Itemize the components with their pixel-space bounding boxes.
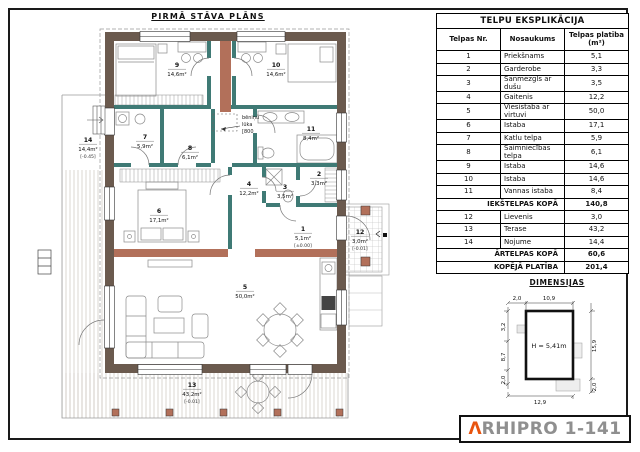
room-nr: 7 [437, 132, 501, 145]
room-name: Istaba [501, 120, 565, 133]
column-header-name: Nosaukums [501, 29, 565, 51]
table-row: 6Istaba17,1 [437, 120, 629, 133]
room-area-label: 3,3m² [311, 180, 327, 187]
room-number: 3 [283, 184, 287, 191]
room-nr: 5 [437, 104, 501, 120]
table-row: 2Garderobe3,3 [437, 63, 629, 76]
table-row: 9Istaba14,6 [437, 161, 629, 174]
logo-accent-letter: Λ [468, 421, 481, 438]
entry-steps [87, 106, 105, 134]
room-number: 12 [356, 229, 365, 236]
dim-left-3: 2,0 [501, 375, 507, 384]
room-area: 3,0 [565, 211, 629, 224]
room-elevation-label: [-0.45] [80, 154, 96, 160]
room-nr: 3 [437, 76, 501, 92]
room-area-label: 8,4m² [303, 135, 319, 142]
room-area: 5,1 [565, 51, 629, 64]
summary-area: 140,8 [565, 198, 629, 211]
column-header-nr: Telpas Nr. [437, 29, 501, 51]
room-area: 3,3 [565, 63, 629, 76]
table-title: TELPU EKSPLIKĀCIJA [437, 14, 629, 29]
room-name: Vannas istaba [501, 186, 565, 199]
room-name: Gaitenis [501, 91, 565, 104]
room-name: Viesistaba ar virtuvi [501, 104, 565, 120]
table-row: 1Priekšnams5,1 [437, 51, 629, 64]
table-row: 4Gaitenis12,2 [437, 91, 629, 104]
column-header-area: Telpas platība (m²) [565, 29, 629, 51]
logo: ΛRHIPRO 1-141 [459, 415, 631, 443]
table-row: 8Saimniecības telpa6,1 [437, 145, 629, 161]
room-number: 7 [143, 134, 147, 141]
room-name: Istaba [501, 161, 565, 174]
plan-title: PIRMĀ STĀVA PLĀNS [108, 12, 308, 21]
room-area: 43,2 [565, 224, 629, 237]
dim-right-2: 2,0 [592, 382, 598, 391]
room-area-label: 14,6m² [167, 71, 186, 78]
room-number: 1 [301, 226, 305, 233]
room-number: 9 [175, 62, 179, 69]
room-explication-table: TELPU EKSPLIKĀCIJA Telpas Nr. Nosaukums … [436, 13, 629, 274]
table-row: 14Nojume14,4 [437, 236, 629, 249]
room-nr: 14 [437, 236, 501, 249]
attic-note-line: [800 [242, 129, 254, 135]
room-number: 4 [247, 181, 252, 188]
room-area: 14,6 [565, 173, 629, 186]
room-number: 13 [188, 382, 197, 389]
table-row: 11Vannas istaba8,4 [437, 186, 629, 199]
room-area: 50,0 [565, 104, 629, 120]
dim-right-1: 15,9 [592, 339, 598, 352]
room-name: Priekšnams [501, 51, 565, 64]
room-area-label: 12,2m² [239, 190, 258, 197]
dim-bottom: 12,9 [534, 400, 547, 406]
room-number: 6 [157, 208, 161, 215]
room-area-label: 14,6m² [266, 71, 285, 78]
room-area: 17,1 [565, 120, 629, 133]
room-area: 14,4 [565, 236, 629, 249]
summary-area: 60,6 [565, 249, 629, 262]
room-nr: 13 [437, 224, 501, 237]
table-title-row: TELPU EKSPLIKĀCIJA [437, 14, 629, 29]
room-nr: 6 [437, 120, 501, 133]
room-name: Sanmezgls ar dušu [501, 76, 565, 92]
room-number: 11 [307, 126, 316, 133]
dim-left-2: 8,7 [501, 352, 507, 361]
room-area-label: 43,2m² [182, 391, 201, 398]
room-area: 5,9 [565, 132, 629, 145]
room-elevation-label: [±0.00] [294, 243, 312, 249]
table-row: 7Katlu telpa5,9 [437, 132, 629, 145]
room-elevation-label: [-0.01] [352, 246, 368, 252]
room-nr: 12 [437, 211, 501, 224]
dim-top-1: 2,0 [513, 296, 522, 302]
summary-label: ĀRTELPAS KOPĀ [437, 249, 565, 262]
table-total-row: KOPĒJĀ PLATĪBA201,4 [437, 261, 629, 274]
summary-area: 201,4 [565, 261, 629, 274]
room-nr: 9 [437, 161, 501, 174]
room-nr: 4 [437, 91, 501, 104]
table-row: 10Istaba14,6 [437, 173, 629, 186]
room-area-label: 3,0m² [352, 238, 368, 245]
room-name: Nojume [501, 236, 565, 249]
dim-top-2: 10,9 [543, 296, 556, 302]
room-area: 12,2 [565, 91, 629, 104]
room-nr: 2 [437, 63, 501, 76]
room-area: 6,1 [565, 145, 629, 161]
room-name: Saimniecības telpa [501, 145, 565, 161]
table-summary-row: IEKŠTELPAS KOPĀ140,8 [437, 198, 629, 211]
table-row: 3Sanmezgls ar dušu3,5 [437, 76, 629, 92]
attic-note-line: lūka [242, 122, 252, 128]
table-row: 5Viesistaba ar virtuvi50,0 [437, 104, 629, 120]
room-elevation-label: [-0.01] [184, 399, 200, 405]
room-number: 10 [272, 62, 281, 69]
summary-label: IEKŠTELPAS KOPĀ [437, 198, 565, 211]
table-row: 12Lievenis3,0 [437, 211, 629, 224]
room-area-label: 6,1m² [182, 154, 198, 161]
explication-table-body: 1Priekšnams5,12Garderobe3,33Sanmezgls ar… [437, 51, 629, 274]
room-area: 8,4 [565, 186, 629, 199]
drawing-sheet: bēniņulūka[800 15,1m²[±0.00]23,3m²33,5m²… [0, 0, 640, 452]
table-summary-row: ĀRTELPAS KOPĀ60,6 [437, 249, 629, 262]
logo-text: RHIPRO 1-141 [482, 421, 622, 438]
room-area-label: 3,5m² [277, 193, 293, 200]
room-area: 14,6 [565, 161, 629, 174]
building-height-label: H = 5,41m [531, 342, 566, 350]
room-number: 2 [317, 171, 321, 178]
porch [343, 204, 389, 326]
room-number: 14 [84, 137, 93, 144]
attic-note-line: bēniņu [242, 115, 259, 121]
room-name: Lievenis [501, 211, 565, 224]
room-area-label: 14,4m² [78, 146, 97, 153]
room-nr: 10 [437, 173, 501, 186]
room-nr: 1 [437, 51, 501, 64]
room-name: Katlu telpa [501, 132, 565, 145]
summary-label: KOPĒJĀ PLATĪBA [437, 261, 565, 274]
room-name: Terase [501, 224, 565, 237]
dim-left-1: 3,2 [501, 323, 507, 332]
room-area-label: 5,1m² [295, 235, 311, 242]
room-number: 8 [188, 145, 192, 152]
room-nr: 11 [437, 186, 501, 199]
room-area-label: 5,9m² [137, 143, 153, 150]
room-area-label: 50,0m² [235, 293, 254, 300]
room-area-label: 17,1m² [149, 217, 168, 224]
room-name: Garderobe [501, 63, 565, 76]
room-area: 3,5 [565, 76, 629, 92]
table-row: 13Terase43,2 [437, 224, 629, 237]
room-nr: 8 [437, 145, 501, 161]
room-name: Istaba [501, 173, 565, 186]
section-marker [38, 250, 51, 274]
dimensions-diagram: 2,0 10,9 12,9 3,2 8,7 2,0 15,9 2,0 H = 5… [468, 290, 634, 412]
dimensions-title: DIMENSIJAS [478, 278, 636, 287]
table-header-row: Telpas Nr. Nosaukums Telpas platība (m²) [437, 29, 629, 51]
room-number: 5 [243, 284, 247, 291]
